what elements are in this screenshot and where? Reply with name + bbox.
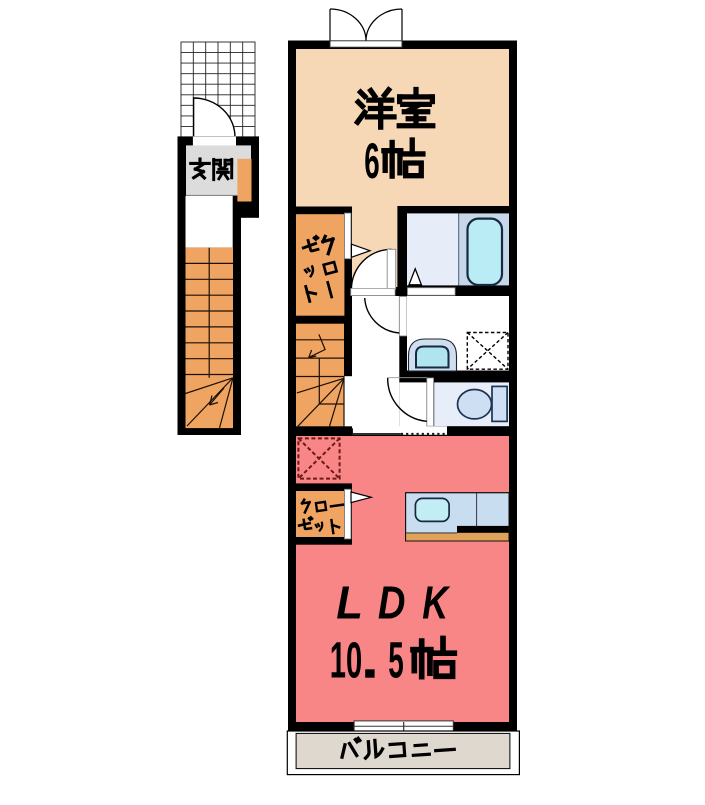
svg-text:L: L [336, 576, 363, 628]
svg-text:K: K [422, 577, 451, 628]
svg-text:6: 6 [364, 132, 379, 189]
svg-text:D: D [378, 577, 406, 628]
svg-text:10: 10 [330, 632, 362, 688]
svg-text:5: 5 [388, 632, 404, 689]
